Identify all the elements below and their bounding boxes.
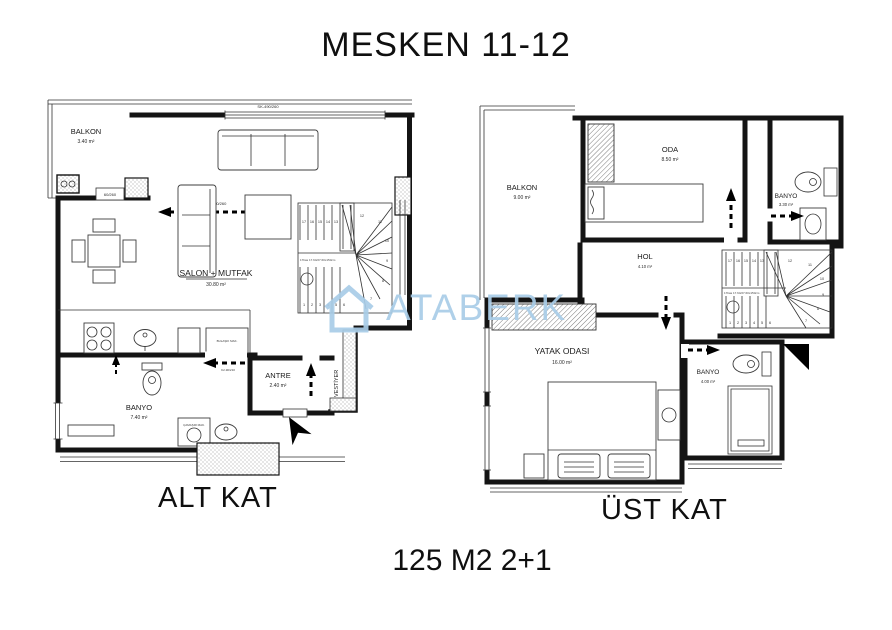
stair-step-number: 9	[386, 259, 388, 263]
stair-step-number: 3	[745, 321, 747, 325]
stair-step-number: 17	[728, 259, 732, 263]
room-area-banyo2: 4.00 m²	[701, 379, 716, 384]
stair-step-number: 15	[744, 259, 748, 263]
ust-kat-plan: 17bas 17.64/27.60x150cm 17 16 15 14 13 1…	[470, 100, 855, 500]
stair-step-number: 2	[737, 321, 739, 325]
vestiyer-label: VESTİYER	[333, 370, 340, 397]
bench-icon	[524, 454, 544, 478]
door-arrow-icon	[661, 296, 671, 330]
room-label-banyo: BANYO	[126, 403, 152, 412]
window-label: SK-490/260	[257, 104, 279, 109]
room-label-banyo2: BANYO	[697, 369, 720, 376]
apartment-area-label: 125 M2 2+1	[26, 544, 892, 578]
shower-icon	[728, 386, 772, 454]
room-label-balkon: BALKON	[507, 183, 537, 192]
stair-step-number: 13	[760, 259, 764, 263]
stair-step-number: 5	[335, 303, 337, 307]
stair-note: 17bas 17.64/27.60x150cm	[724, 291, 760, 295]
stair-step-number: 16	[736, 259, 740, 263]
pier	[197, 443, 279, 475]
window-icon	[54, 403, 63, 439]
fridge-icon	[178, 328, 200, 353]
double-bed-icon	[548, 382, 656, 480]
stair-step-number: 14	[752, 259, 756, 263]
alt-kat-label: ALT KAT	[158, 482, 278, 515]
room-label-balkon: BALKON	[71, 127, 101, 136]
stair-step-number: 15	[318, 220, 322, 224]
door-arrow-icon	[771, 211, 804, 221]
stair-step-number: 11	[808, 263, 812, 267]
room-area-banyo: 7.40 m²	[131, 415, 148, 421]
door-arrow-icon	[112, 355, 120, 374]
stair-step-number: 17	[302, 220, 306, 224]
room-area-antre: 2.40 m²	[270, 383, 287, 389]
stair-step-number: 12	[360, 214, 364, 218]
coffee-table-icon	[245, 195, 291, 239]
room-label-hol: HOL	[637, 252, 652, 261]
stair-step-number: 11	[378, 220, 382, 224]
room-area-balkon: 3.40 m²	[78, 139, 95, 145]
stair-step-number: 9	[822, 293, 824, 297]
window-icon: SK-490/260	[225, 104, 385, 120]
room-label-banyo1: BANYO	[775, 193, 798, 200]
stair-step-number: 10	[385, 239, 389, 243]
toilet-icon	[142, 363, 162, 395]
room-area-banyo1: 3.30 m²	[779, 202, 794, 207]
door-arrow-icon	[724, 188, 736, 244]
entrance-threshold	[283, 409, 307, 417]
ust-kat-label: ÜST KAT	[601, 494, 728, 527]
washbasin-icon	[800, 208, 826, 240]
sofa-icon	[218, 130, 318, 170]
door-arrow-icon	[306, 363, 316, 396]
stair-icon: 17bas 17.64/27.60x150cm 17 16 15 14 13 1…	[722, 250, 832, 328]
page-title: MESKEN 11-12	[0, 26, 892, 65]
room-label-antre: ANTRE	[265, 371, 290, 380]
room-area-yatak: 16.00 m²	[552, 360, 572, 366]
stair-step-number: 4	[753, 321, 755, 325]
stair-step-number: 8	[382, 279, 384, 283]
stove-icon	[84, 323, 114, 353]
sofa-icon	[178, 185, 216, 277]
stair-step-number: 14	[326, 220, 330, 224]
stair-step-number: 1	[729, 321, 731, 325]
toilet-icon	[733, 352, 771, 376]
balcony-parapet	[480, 106, 575, 300]
room-label-salon: SALON + MUTFAK	[180, 268, 253, 278]
alt-kat-plan: SK-490/260 60/260 K3-180/260 BULAŞ	[40, 95, 420, 480]
stair-step-number: 1	[303, 303, 305, 307]
stair-note: 17bas 17.64/27.60x150cm	[300, 258, 336, 262]
stair-step-number: 10	[820, 277, 824, 281]
stair-step-number: 2	[311, 303, 313, 307]
room-label-yatak: YATAK ODASI	[535, 346, 590, 356]
single-bed-icon	[585, 184, 703, 222]
stair-step-number: 4	[327, 303, 329, 307]
door-label: K2-90/210	[221, 368, 235, 372]
door-arrow-icon	[681, 344, 720, 358]
sink-icon	[134, 330, 156, 352]
shelf-icon	[68, 425, 114, 436]
stair-step-number: 6	[769, 321, 771, 325]
stair-step-number: 16	[310, 220, 314, 224]
washbasin-icon	[215, 424, 237, 440]
window-icon	[483, 406, 491, 470]
room-area-hol: 4.10 m²	[638, 264, 653, 269]
washing-machine-icon: ÇAMAŞIR MAK.	[178, 418, 210, 446]
stair-icon: 17bas 17.64/27.60x150cm 17 16 15 14 13 1…	[298, 203, 392, 313]
dishwasher-label: BULAŞIK MAK.	[217, 339, 238, 343]
room-area-oda: 8.50 m²	[662, 157, 679, 163]
toilet-icon	[795, 168, 837, 196]
boiler-icon	[57, 175, 79, 193]
stair-step-number: 12	[788, 259, 792, 263]
washer-label: ÇAMAŞIR MAK.	[183, 423, 205, 427]
wardrobe-icon	[588, 124, 614, 182]
dining-table-icon	[72, 219, 136, 283]
stair-step-number: 6	[343, 303, 345, 307]
door-label: 60/260	[104, 192, 117, 197]
stair-step-number: 5	[761, 321, 763, 325]
stair-step-number: 13	[334, 220, 338, 224]
stair-step-number: 8	[817, 307, 819, 311]
door-60: 60/260	[96, 188, 124, 200]
north-arrow-icon	[783, 344, 809, 370]
room-area-salon: 30.80 m²	[206, 282, 226, 288]
dishwasher-icon: BULAŞIK MAK.	[206, 328, 248, 353]
window-icon	[483, 328, 491, 392]
stair-step-number: 7	[805, 319, 807, 323]
door-arrow-icon: K2-90/210	[203, 352, 247, 373]
stair-step-number: 3	[319, 303, 321, 307]
room-area-balkon: 9.00 m²	[514, 195, 531, 201]
floor-plan-page: { "title": "MESKEN 11-12", "area_label":…	[0, 0, 892, 630]
stair-step-number: 7	[370, 297, 372, 301]
wardrobe-icon	[492, 304, 596, 330]
room-label-oda: ODA	[662, 145, 678, 154]
nightstand-icon	[658, 390, 680, 440]
